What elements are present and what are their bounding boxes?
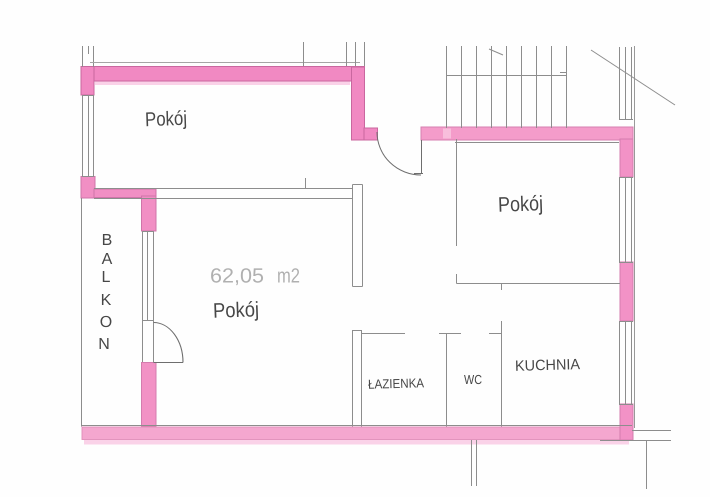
svg-text:WC: WC [464,372,482,387]
svg-text:A: A [102,251,113,268]
svg-text:Pokój: Pokój [145,108,188,131]
svg-text:O: O [100,314,112,331]
svg-text:B: B [102,232,113,249]
svg-text:ŁAZIENKA: ŁAZIENKA [368,375,425,391]
svg-text:KUCHNIA: KUCHNIA [515,356,580,375]
svg-text:62,05: 62,05 [210,265,264,288]
svg-text:N: N [98,336,110,353]
svg-text:K: K [101,292,112,309]
svg-text:Pokój: Pokój [213,298,260,323]
svg-text:m2: m2 [277,265,300,288]
svg-text:L: L [102,269,111,286]
svg-text:Pokój: Pokój [498,192,544,217]
